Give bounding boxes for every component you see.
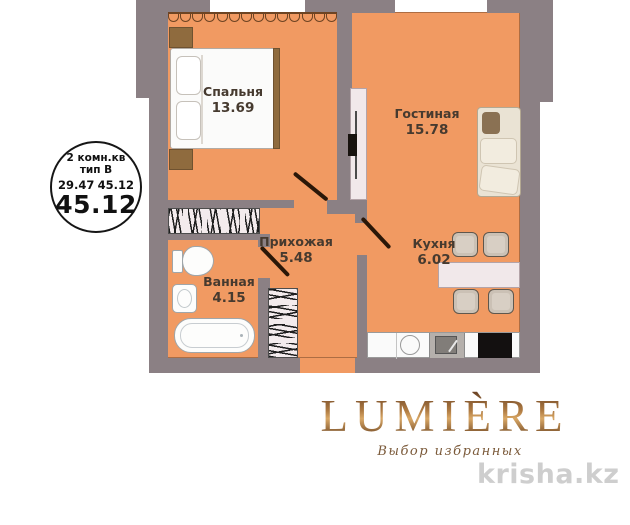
scallop-arc: [241, 14, 252, 22]
scallop-arc: [277, 14, 288, 22]
room-label-living: Гостиная 15.78: [379, 106, 475, 139]
wall-hallway-stub-h: [327, 200, 367, 214]
scallop-arc: [265, 14, 276, 22]
scallop-arc: [204, 14, 215, 22]
bathtub: [174, 318, 255, 353]
room-area: 6.02: [386, 252, 482, 269]
room-area: 5.48: [248, 250, 344, 267]
room-name: Гостиная: [379, 106, 475, 122]
wardrobe-horizontal: [168, 208, 260, 234]
chair-seat: [492, 293, 510, 310]
wall-hallway-kitchen: [357, 255, 367, 358]
washing-machine-icon: [400, 335, 420, 355]
kitchen-counter: [367, 332, 520, 358]
scallop-arc: [326, 14, 337, 22]
entry-doorway: [300, 358, 357, 373]
wall-right-upper: [520, 0, 553, 102]
kitchen-chair: [453, 289, 479, 314]
bathtub-drain: [240, 334, 243, 337]
wall-bedroom-bottom: [168, 200, 294, 208]
toilet-bowl: [182, 246, 214, 276]
chair-seat: [457, 293, 475, 310]
nightstand-top: [169, 27, 193, 48]
room-name: Спальня: [185, 84, 281, 100]
wall-bottom-left: [149, 358, 300, 373]
krisha-watermark: krisha.kz: [477, 459, 619, 490]
scallop-arc: [289, 14, 300, 22]
sofa: [477, 107, 521, 197]
scallop-arc: [168, 14, 179, 22]
room-name: Кухня: [386, 236, 482, 252]
wall-bottom-right: [355, 358, 540, 373]
stamp-subtype: тип B: [52, 164, 140, 176]
room-area: 4.15: [181, 290, 277, 307]
chair-seat: [487, 236, 505, 253]
scallop-arc: [192, 14, 203, 22]
scallop-arc: [217, 14, 228, 22]
scallop-arc: [302, 14, 313, 22]
stove: [478, 333, 512, 358]
scallop-arc: [314, 14, 325, 22]
floorplan-canvas: Спальня 13.69 Гостиная 15.78 Прихожая 5.…: [0, 0, 630, 525]
room-area: 13.69: [185, 100, 281, 117]
room-label-bedroom: Спальня 13.69: [185, 84, 281, 117]
sofa-pillow-brown: [482, 112, 500, 134]
kitchen-chair: [488, 289, 514, 314]
room-label-hallway: Прихожая 5.48: [248, 234, 344, 267]
scallop-arc: [229, 14, 240, 22]
developer-logo: LUMIÈRE: [300, 390, 590, 442]
area-stamp: 2 комн.кв тип B 29.47 45.12 45.12: [50, 141, 142, 233]
room-name: Прихожая: [248, 234, 344, 250]
room-area: 15.78: [379, 122, 475, 139]
toilet: [172, 246, 216, 277]
scallop-arc: [180, 14, 191, 22]
nightstand-bottom: [169, 149, 193, 170]
window-scallop-strip: [168, 12, 337, 23]
logo-tagline: Выбор избранных: [330, 444, 570, 459]
tv-stand: [350, 88, 367, 200]
sofa-cushion: [478, 164, 520, 195]
kitchen-chair: [483, 232, 509, 257]
counter-divider: [396, 333, 397, 359]
tv-icon: [348, 134, 357, 156]
wall-left-lower: [149, 98, 168, 373]
wall-left-upper: [136, 0, 168, 98]
wall-right-lower: [520, 102, 540, 373]
stamp-area-total: 45.12: [52, 192, 140, 218]
room-label-bathroom: Ванная 4.15: [181, 274, 277, 307]
scallop-arc: [253, 14, 264, 22]
stamp-type: 2 комн.кв: [52, 152, 140, 164]
room-label-kitchen: Кухня 6.02: [386, 236, 482, 269]
kitchen-sink-unit: [429, 333, 465, 358]
sofa-cushion: [480, 138, 517, 164]
room-name: Ванная: [181, 274, 277, 290]
bathtub-inner: [180, 323, 249, 348]
